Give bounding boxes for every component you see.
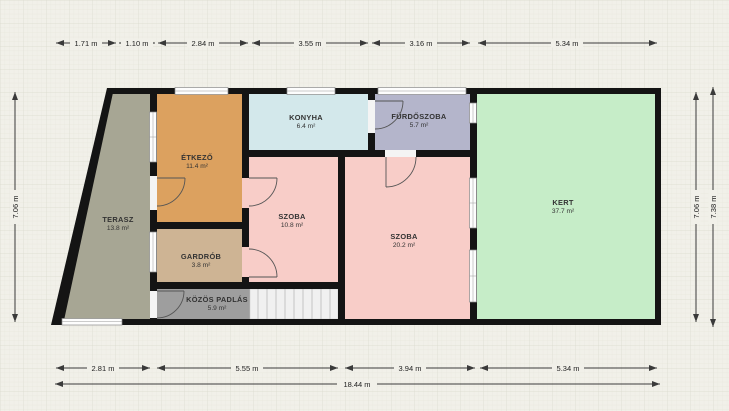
window-gardrob-terasz[interactable] [150, 232, 157, 272]
label-terasz: TERASZ [102, 215, 134, 224]
dim-right-inner-height: 7.06 m [692, 196, 701, 219]
label-kozos-padlas: KÖZÖS PADLÁS [186, 295, 248, 304]
area-etkezo: 11.4 m² [186, 163, 209, 170]
door-opening-gardrob-szoba[interactable] [242, 247, 249, 277]
wall-padlas-top[interactable] [150, 282, 345, 289]
label-konyha: KONYHA [289, 113, 323, 122]
floor-plan-canvas: TERASZ 13.8 m² ÉTKEZŐ 11.4 m² KONYHA 6.4… [0, 0, 729, 411]
label-etkezo: ÉTKEZŐ [181, 153, 213, 162]
area-kert: 37.7 m² [552, 208, 575, 215]
wall-konyha-bottom[interactable] [242, 150, 477, 157]
door-opening-terasz-etkezo[interactable] [150, 176, 157, 210]
window-konyha-top[interactable] [287, 88, 335, 95]
dim-top-5: 3.16 m [410, 39, 433, 48]
label-szoba-large: SZOBA [390, 232, 418, 241]
window-etkezo-top[interactable] [175, 88, 228, 95]
window-szoba-kert-upper[interactable] [470, 178, 477, 228]
dim-top-4: 3.55 m [299, 39, 322, 48]
dim-top-1: 1.71 m [75, 39, 98, 48]
staircase[interactable] [250, 289, 338, 319]
dim-bottom-2: 5.55 m [236, 364, 259, 373]
dim-left-height: 7.06 m [11, 196, 20, 219]
area-szoba-large: 20.2 m² [393, 242, 416, 249]
dim-bottom-3: 3.94 m [399, 364, 422, 373]
label-gardrob: GARDRÓB [181, 252, 221, 261]
dim-bottom-4: 5.34 m [557, 364, 580, 373]
wall-bottom[interactable] [57, 319, 661, 325]
room-konyha[interactable] [249, 94, 368, 150]
window-szoba-kert-lower[interactable] [470, 250, 477, 302]
dim-total-width: 18.44 m [343, 380, 370, 389]
window-furdoszoba-kert[interactable] [470, 103, 477, 123]
area-kozos-padlas: 5.9 m² [208, 305, 227, 312]
area-szoba-small: 10.8 m² [281, 222, 304, 229]
door-opening-etkezo-szoba[interactable] [242, 178, 249, 208]
dim-top-2: 1.10 m [126, 39, 149, 48]
dim-top-6: 5.34 m [556, 39, 579, 48]
area-konyha: 6.4 m² [297, 123, 316, 130]
window-etkezo-terasz[interactable] [150, 112, 157, 162]
label-kert: KERT [552, 198, 574, 207]
door-opening-furdoszoba-szoba[interactable] [385, 150, 416, 157]
area-gardrob: 3.8 m² [192, 262, 211, 269]
wall-szoba-divider[interactable] [338, 150, 345, 325]
window-furdoszoba-top[interactable] [378, 88, 466, 95]
area-terasz: 13.8 m² [107, 225, 130, 232]
dim-bottom-1: 2.81 m [92, 364, 115, 373]
label-szoba-small: SZOBA [278, 212, 306, 221]
window-terasz-bottom[interactable] [62, 319, 122, 326]
label-furdoszoba: FÜRDŐSZOBA [391, 112, 447, 121]
wall-gardrob-top[interactable] [150, 222, 249, 229]
area-furdoszoba: 5.7 m² [410, 122, 429, 129]
dim-right-outer-height: 7.38 m [709, 196, 718, 219]
floor-plan-drawing: TERASZ 13.8 m² ÉTKEZŐ 11.4 m² KONYHA 6.4… [0, 0, 729, 411]
dim-top-3: 2.84 m [192, 39, 215, 48]
door-opening-terasz-padlas[interactable] [150, 291, 157, 318]
door-opening-konyha-furdoszoba[interactable] [368, 100, 375, 133]
wall-right[interactable] [655, 88, 661, 325]
